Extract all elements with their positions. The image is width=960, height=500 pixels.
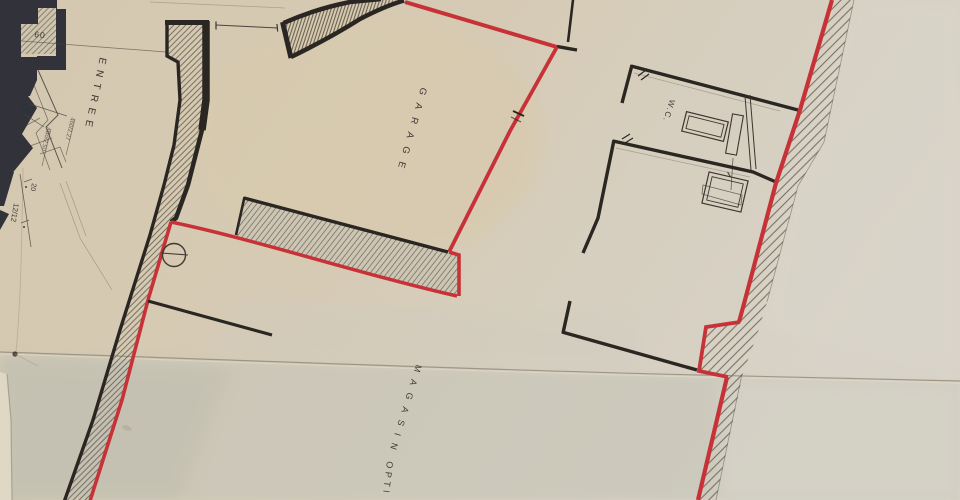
svg-text:20: 20 xyxy=(29,183,37,192)
svg-text:60: 60 xyxy=(34,29,47,40)
